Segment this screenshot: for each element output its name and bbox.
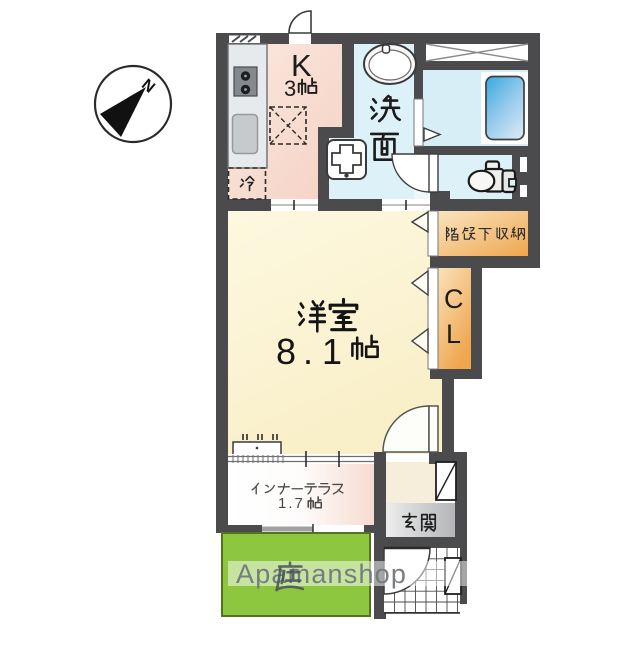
svg-text:1.7: 1.7 xyxy=(278,495,305,512)
svg-text:3: 3 xyxy=(284,76,296,101)
svg-text:C: C xyxy=(444,284,464,314)
svg-text:.: . xyxy=(303,331,313,372)
svg-text:Apamanshop: Apamanshop xyxy=(236,559,407,589)
svg-text:1: 1 xyxy=(322,331,342,372)
svg-text:L: L xyxy=(446,319,461,349)
svg-text:8: 8 xyxy=(276,331,296,372)
